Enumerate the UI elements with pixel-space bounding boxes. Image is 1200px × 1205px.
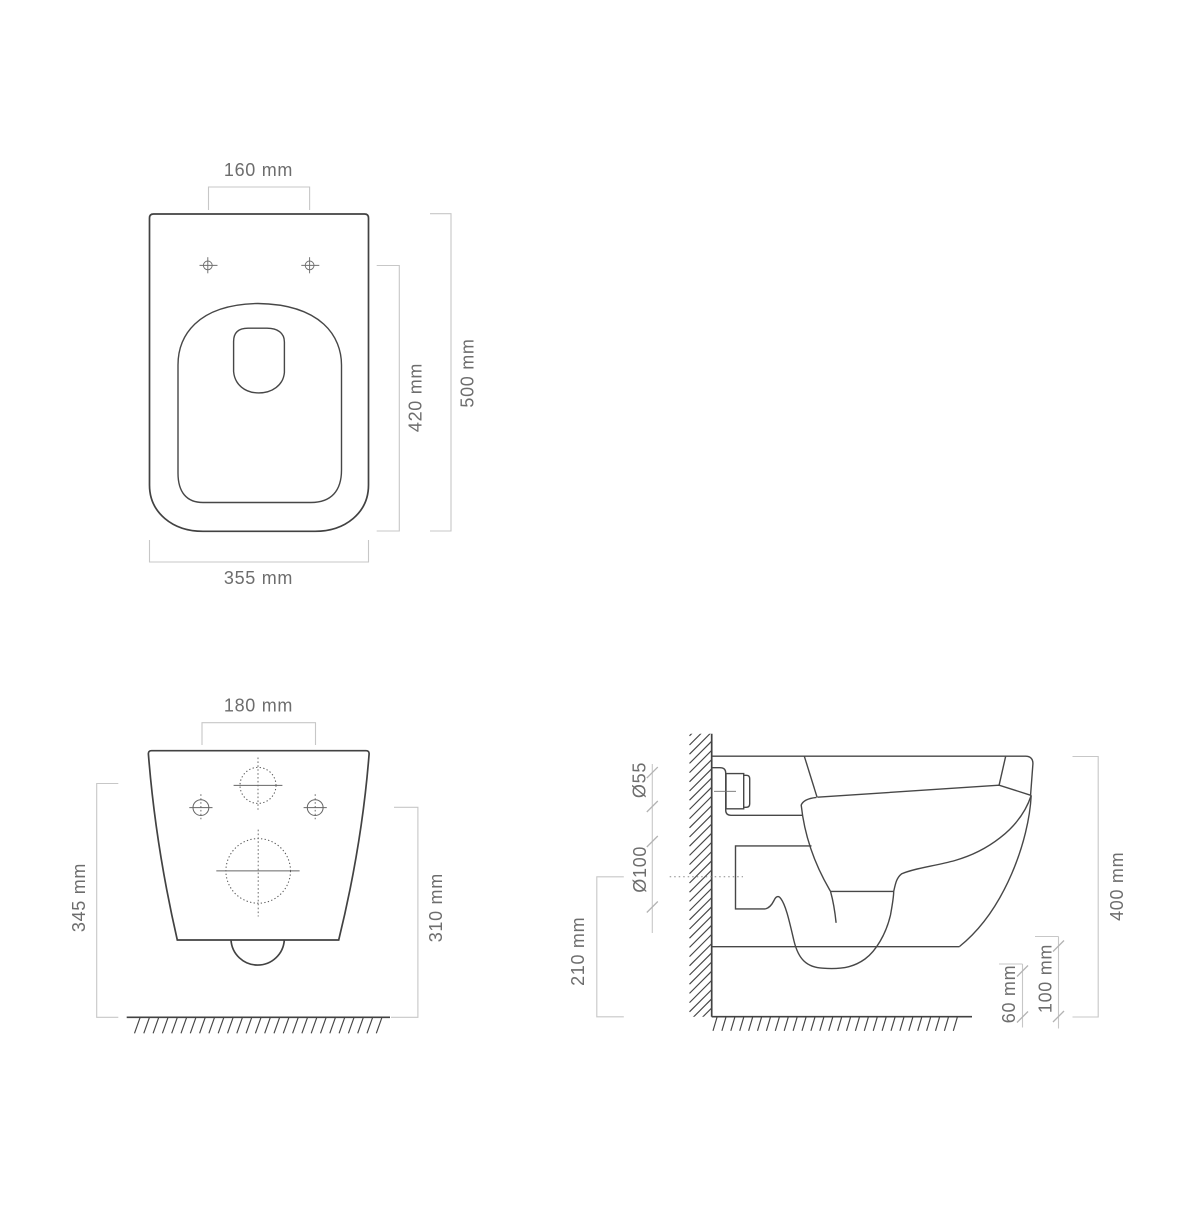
svg-text:60 mm: 60 mm <box>999 965 1019 1024</box>
svg-text:160 mm: 160 mm <box>224 160 293 180</box>
svg-text:345 mm: 345 mm <box>69 863 89 932</box>
svg-text:Ø100: Ø100 <box>630 846 650 893</box>
svg-text:500 mm: 500 mm <box>458 338 478 407</box>
svg-text:Ø55: Ø55 <box>630 762 650 798</box>
svg-text:210 mm: 210 mm <box>568 917 588 986</box>
svg-text:400 mm: 400 mm <box>1107 852 1127 921</box>
svg-text:310 mm: 310 mm <box>426 873 446 942</box>
svg-text:180 mm: 180 mm <box>224 696 293 716</box>
svg-text:100 mm: 100 mm <box>1036 944 1056 1013</box>
svg-text:420 mm: 420 mm <box>406 363 426 432</box>
svg-text:355 mm: 355 mm <box>224 568 293 588</box>
